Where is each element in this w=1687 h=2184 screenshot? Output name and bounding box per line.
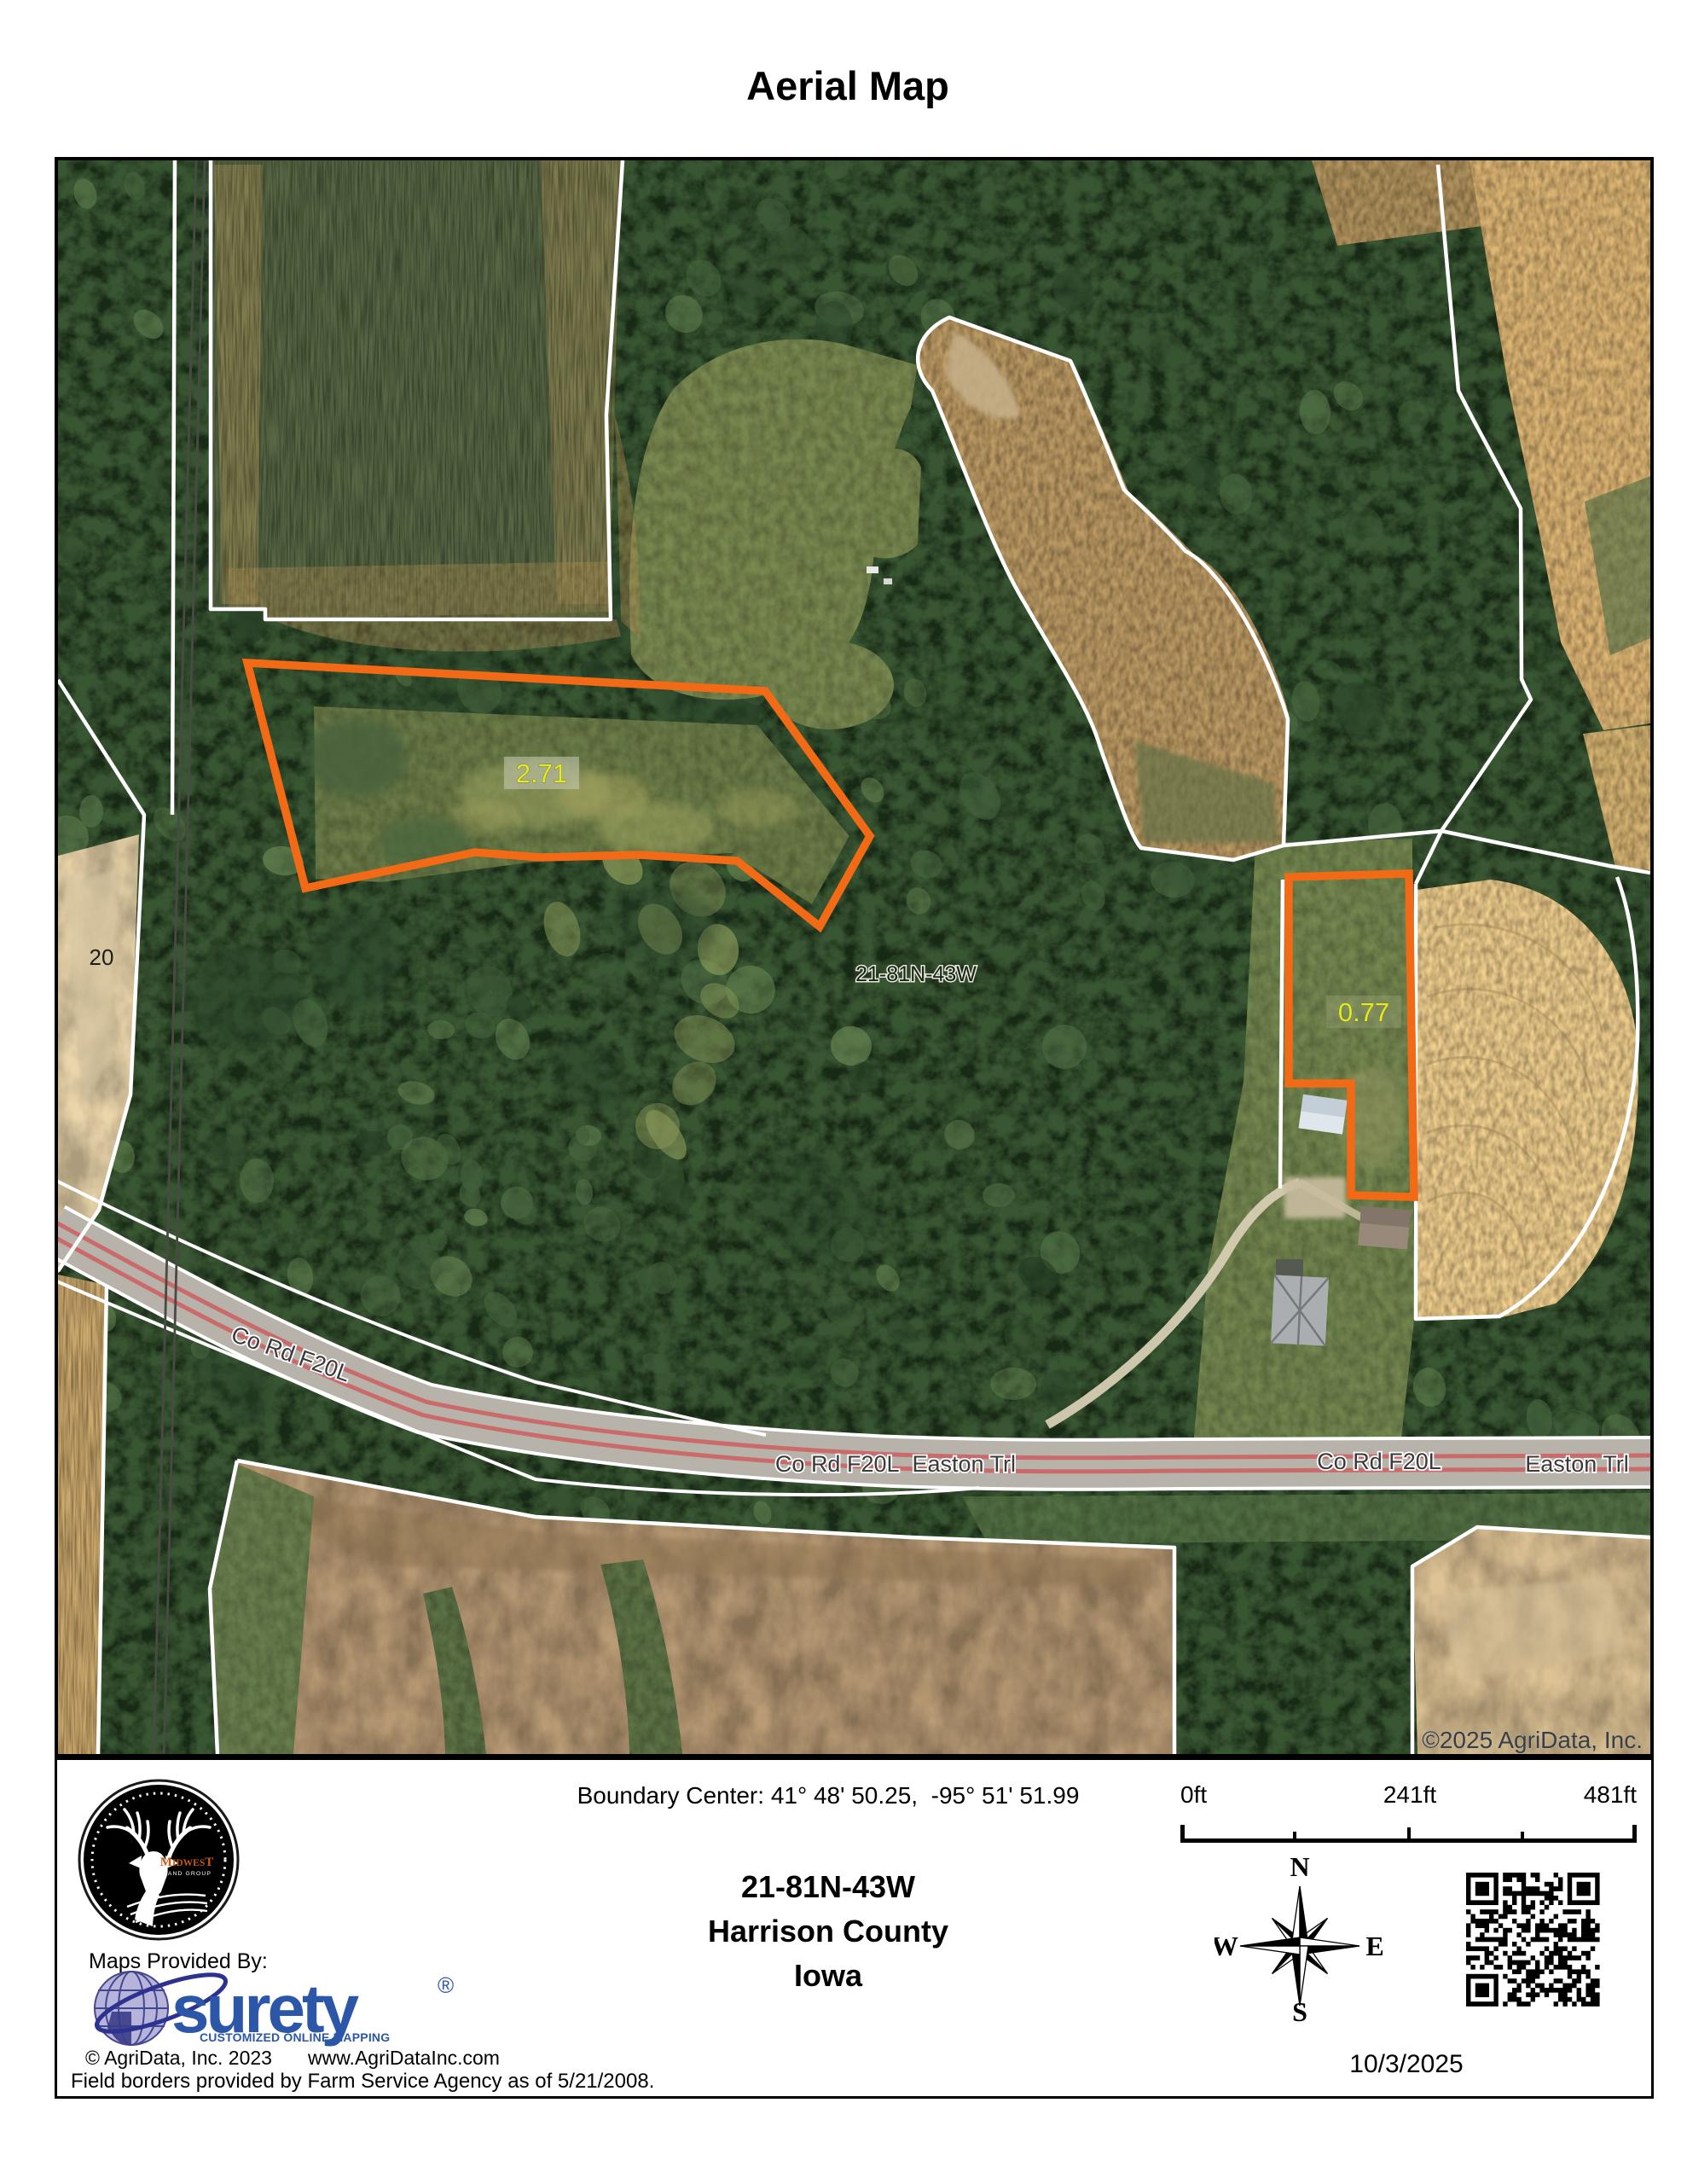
- svg-text:N: N: [1290, 1854, 1309, 1882]
- svg-text:S: S: [1292, 1996, 1307, 2024]
- svg-text:Easton Trl: Easton Trl: [1525, 1451, 1629, 1477]
- svg-text:0.77: 0.77: [1338, 997, 1389, 1027]
- svg-text:E: E: [1365, 1931, 1383, 1961]
- svg-text:0ft: 0ft: [1180, 1781, 1207, 1808]
- svg-text:Co Rd F20L Easton Trl: Co Rd F20L Easton Trl: [775, 1451, 1016, 1477]
- svg-text:481ft: 481ft: [1584, 1781, 1637, 1808]
- svg-text:Co Rd F20L: Co Rd F20L: [1317, 1449, 1441, 1474]
- svg-text:20: 20: [90, 944, 114, 970]
- svg-text:241ft: 241ft: [1383, 1781, 1436, 1808]
- svg-text:©2025 AgriData, Inc.: ©2025 AgriData, Inc.: [1422, 1727, 1643, 1753]
- svg-text:2.71: 2.71: [516, 758, 567, 788]
- svg-text:21-81N-43W: 21-81N-43W: [855, 962, 977, 986]
- svg-text:®: ®: [438, 1972, 454, 1998]
- svg-text:LAND GROUP: LAND GROUP: [164, 1871, 212, 1877]
- svg-text:W: W: [1215, 1931, 1238, 1961]
- svg-text:CUSTOMIZED ONLINE MAPPING: CUSTOMIZED ONLINE MAPPING: [200, 2030, 390, 2044]
- svg-text:MIDWEST: MIDWEST: [160, 1856, 214, 1869]
